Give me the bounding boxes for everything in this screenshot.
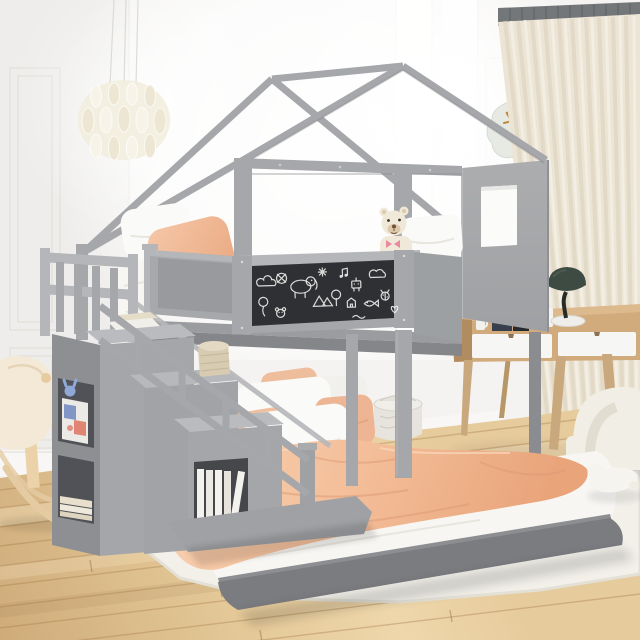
lamp-stem	[564, 292, 566, 318]
side-panel	[462, 160, 548, 332]
doodle-sparkle	[318, 268, 326, 276]
chalkboard-rail	[232, 250, 420, 334]
bedroom-scene	[0, 0, 640, 640]
corner-board	[414, 252, 462, 342]
basket-on-step	[198, 341, 230, 377]
rear-post	[529, 332, 541, 456]
cubby-book-colorful	[62, 398, 88, 444]
support-post-front	[346, 334, 358, 486]
teddy-nose	[392, 225, 396, 229]
support-post-left	[234, 158, 252, 256]
product-photo: Kids' house-frame bunk bed in a bright b…	[0, 0, 640, 640]
panel-window	[481, 185, 517, 247]
